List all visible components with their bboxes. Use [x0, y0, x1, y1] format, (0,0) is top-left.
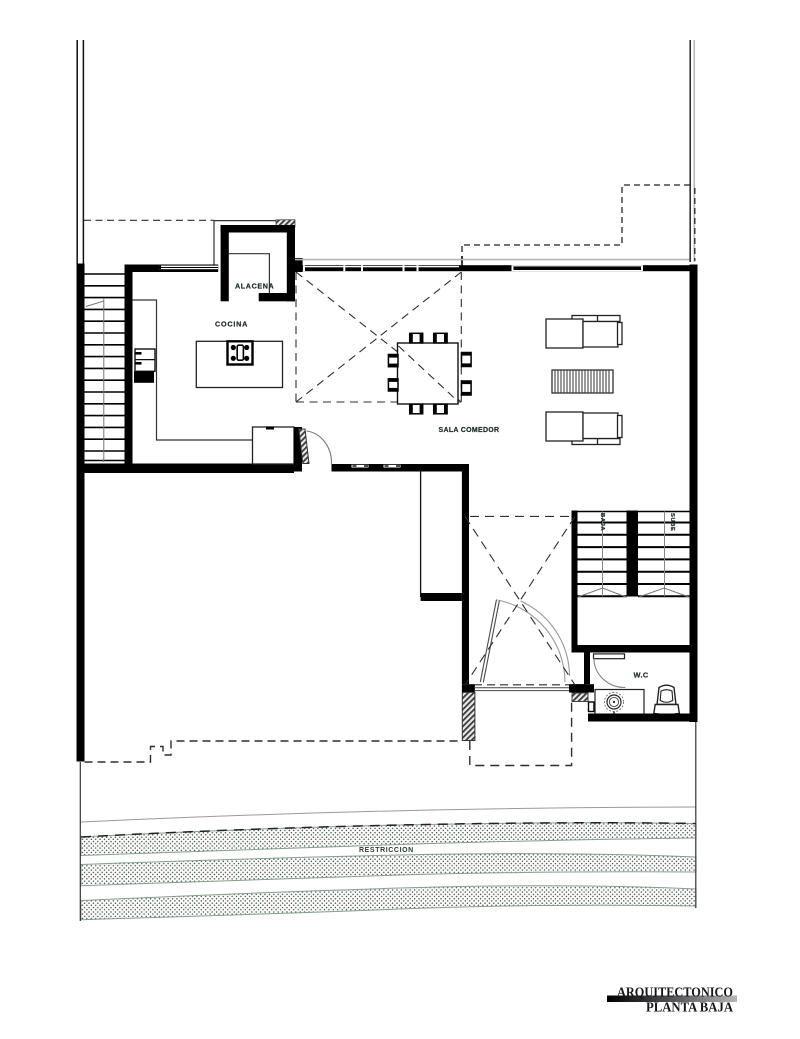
svg-text:SUBE: SUBE	[669, 513, 675, 532]
svg-text:SALA COMEDOR: SALA COMEDOR	[439, 427, 500, 434]
svg-text:RESTRICCION: RESTRICCION	[359, 847, 414, 854]
svg-text:COCINA: COCINA	[215, 320, 248, 329]
svg-text:W.C: W.C	[634, 671, 649, 680]
svg-text:ARQUITECTONICO: ARQUITECTONICO	[617, 986, 733, 1001]
svg-text:BAJA: BAJA	[599, 513, 605, 531]
svg-text:ALACENA: ALACENA	[235, 282, 274, 291]
svg-text:PLANTA BAJA: PLANTA BAJA	[646, 1001, 734, 1016]
